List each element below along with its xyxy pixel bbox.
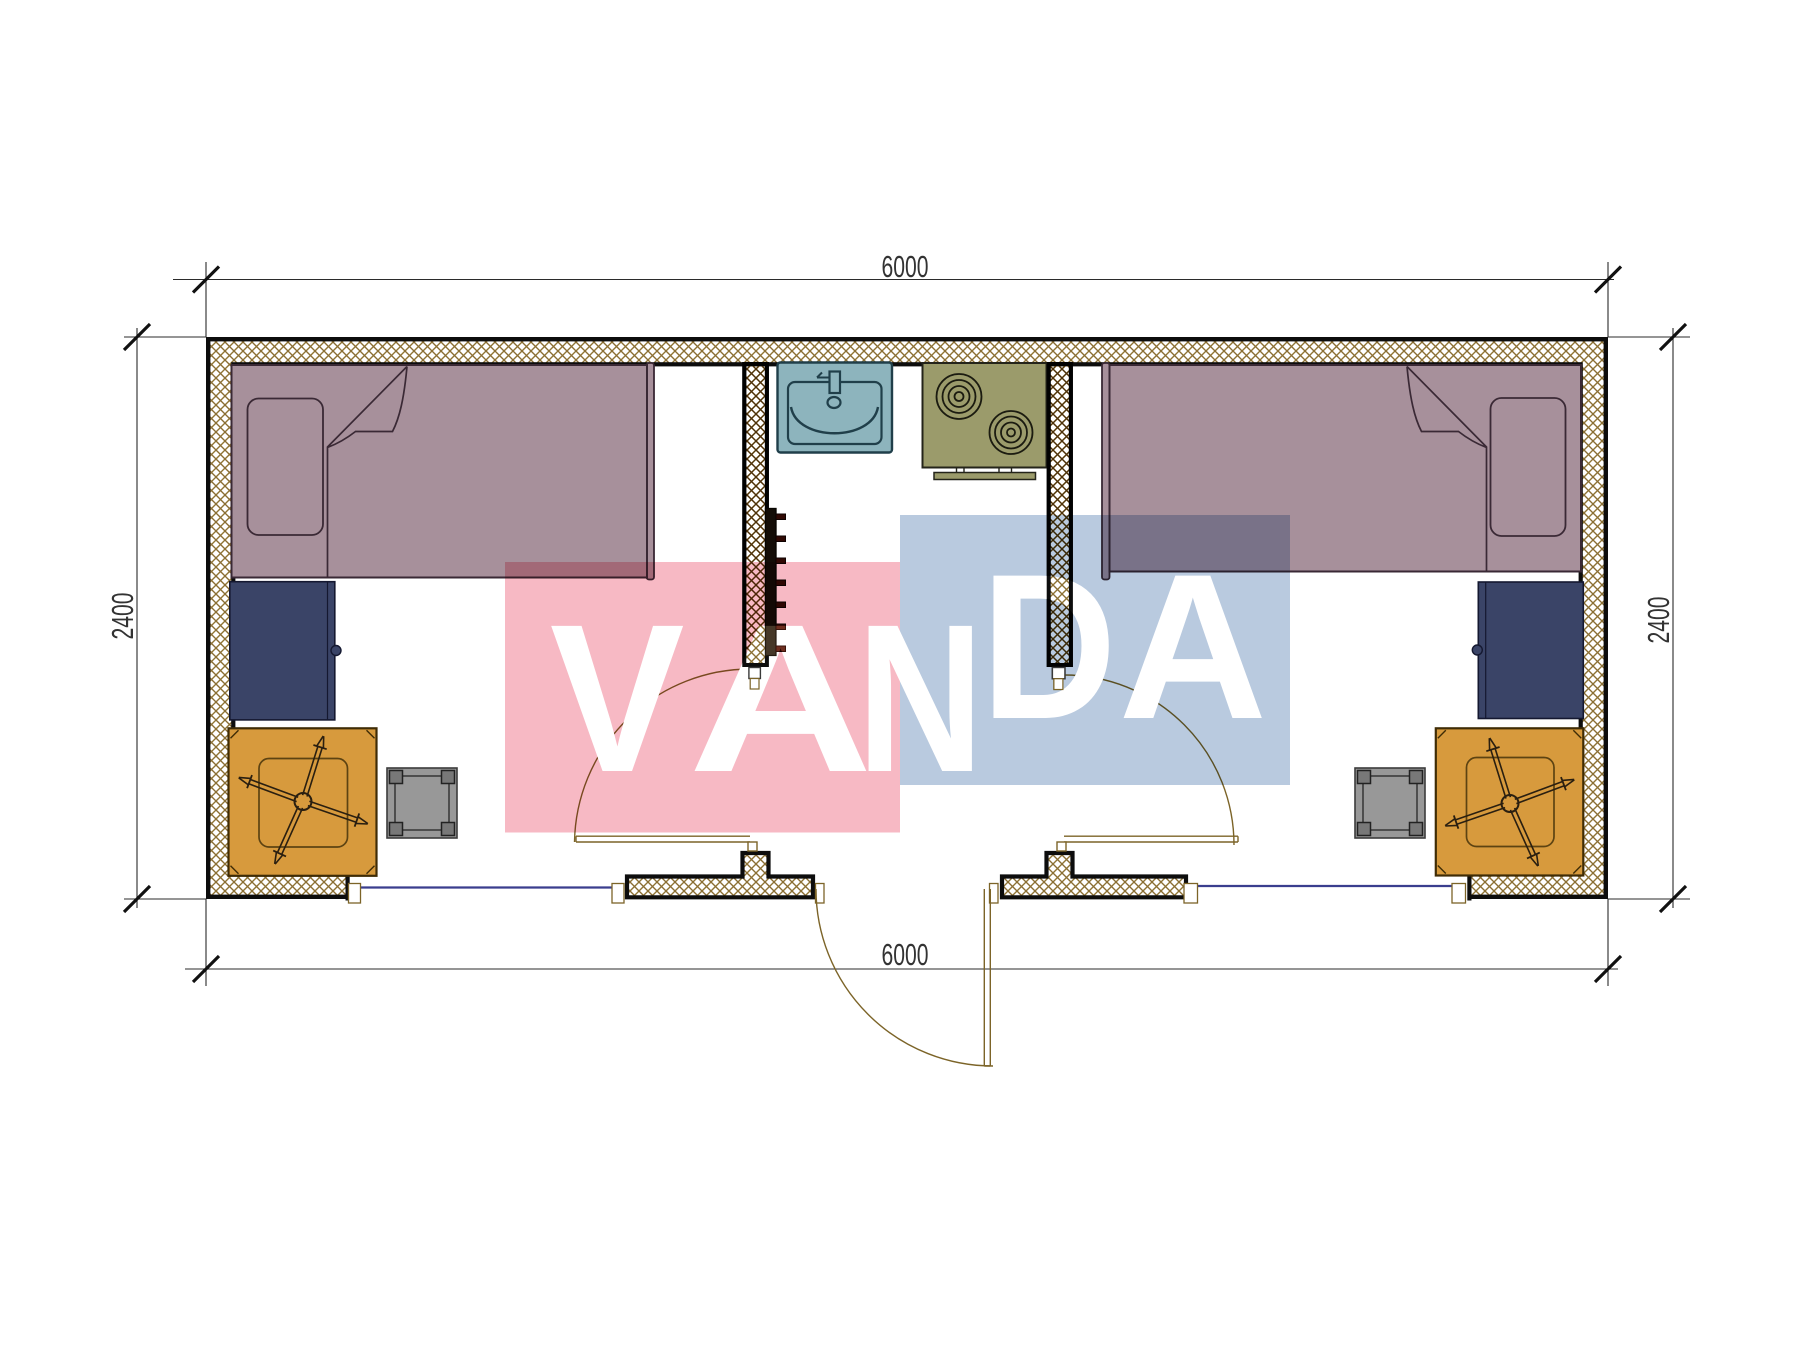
svg-text:2400: 2400 xyxy=(1641,597,1676,644)
svg-text:6000: 6000 xyxy=(882,937,929,972)
svg-text:6000: 6000 xyxy=(882,249,929,284)
svg-text:2400: 2400 xyxy=(105,593,140,640)
svg-text:A: A xyxy=(1119,531,1268,763)
svg-text:V: V xyxy=(550,580,685,816)
svg-text:A: A xyxy=(688,580,873,816)
svg-text:N: N xyxy=(857,581,984,817)
